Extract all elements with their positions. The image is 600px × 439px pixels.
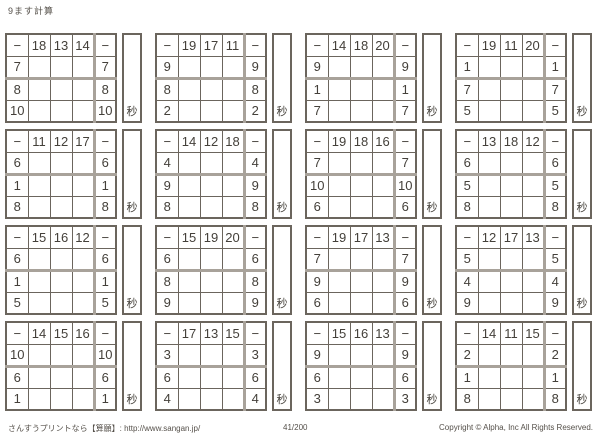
header-right-operator-cell: − xyxy=(544,130,566,152)
top-number-cell: 13 xyxy=(200,322,222,344)
right-number-cell: 5 xyxy=(544,248,566,270)
answer-cell xyxy=(350,196,372,218)
grid-row: 99 xyxy=(306,344,416,366)
right-number-cell: 8 xyxy=(244,78,266,100)
answer-cell xyxy=(372,248,394,270)
grid-row: 99 xyxy=(156,56,266,78)
left-number-cell: 4 xyxy=(156,152,178,174)
top-number-cell: 14 xyxy=(72,34,94,56)
answer-cell xyxy=(222,78,244,100)
answer-cell xyxy=(50,366,72,388)
seconds-label: 秒 xyxy=(127,391,138,407)
answer-cell xyxy=(50,270,72,292)
grid-row: 44 xyxy=(156,152,266,174)
grid-row: 11 xyxy=(456,56,566,78)
answer-cell xyxy=(522,56,544,78)
top-number-cell: 20 xyxy=(372,34,394,56)
answer-cell xyxy=(200,292,222,314)
grid-row: 11 xyxy=(6,270,116,292)
grid-header-row: −191120− xyxy=(456,34,566,56)
answer-cell xyxy=(350,248,372,270)
minus-operator-cell: − xyxy=(6,322,28,344)
right-number-cell: 1 xyxy=(94,388,116,410)
header-right-operator-cell: − xyxy=(94,226,116,248)
top-number-cell: 14 xyxy=(178,130,200,152)
answer-cell xyxy=(350,270,372,292)
minus-operator-cell: − xyxy=(6,130,28,152)
answer-cell xyxy=(350,174,372,196)
grid-row: 55 xyxy=(6,292,116,314)
answer-cell xyxy=(328,388,350,410)
right-number-cell: 9 xyxy=(394,56,416,78)
top-number-cell: 15 xyxy=(178,226,200,248)
right-number-cell: 6 xyxy=(544,152,566,174)
left-number-cell: 6 xyxy=(306,292,328,314)
answer-cell xyxy=(178,174,200,196)
answer-cell xyxy=(350,100,372,122)
answer-cell xyxy=(72,152,94,174)
header-right-operator-cell: − xyxy=(244,226,266,248)
grid-row: 88 xyxy=(456,388,566,410)
top-number-cell: 14 xyxy=(478,322,500,344)
right-number-cell: 10 xyxy=(94,344,116,366)
top-number-cell: 15 xyxy=(328,322,350,344)
answer-cell xyxy=(328,196,350,218)
top-number-cell: 12 xyxy=(50,130,72,152)
top-number-cell: 20 xyxy=(222,226,244,248)
seconds-box: 秒 xyxy=(422,225,442,315)
top-number-cell: 17 xyxy=(178,322,200,344)
top-number-cell: 13 xyxy=(522,226,544,248)
grid-row: 11 xyxy=(6,388,116,410)
right-number-cell: 6 xyxy=(244,366,266,388)
seconds-box: 秒 xyxy=(272,129,292,219)
left-number-cell: 8 xyxy=(156,78,178,100)
left-number-cell: 4 xyxy=(456,270,478,292)
answer-cell xyxy=(372,270,394,292)
worksheet-unit: −141820−991177秒 xyxy=(305,33,443,123)
header-right-operator-cell: − xyxy=(244,322,266,344)
left-number-cell: 8 xyxy=(456,388,478,410)
grid-row: 77 xyxy=(306,248,416,270)
top-number-cell: 18 xyxy=(28,34,50,56)
answer-cell xyxy=(178,78,200,100)
right-number-cell: 3 xyxy=(394,388,416,410)
answer-cell xyxy=(500,248,522,270)
answer-cell xyxy=(178,366,200,388)
calc-grid: −141516−10106611 xyxy=(5,321,117,411)
header-right-operator-cell: − xyxy=(544,322,566,344)
worksheet-unit: −141516−10106611秒 xyxy=(5,321,143,411)
answer-cell xyxy=(72,292,94,314)
grid-row: 66 xyxy=(6,366,116,388)
answer-cell xyxy=(50,388,72,410)
answer-cell xyxy=(50,292,72,314)
answer-cell xyxy=(372,366,394,388)
left-number-cell: 1 xyxy=(6,270,28,292)
grid-row: 88 xyxy=(6,78,116,100)
answer-cell xyxy=(178,152,200,174)
seconds-label: 秒 xyxy=(427,199,438,215)
answer-cell xyxy=(522,344,544,366)
right-number-cell: 4 xyxy=(244,388,266,410)
answer-cell xyxy=(522,248,544,270)
left-number-cell: 5 xyxy=(456,174,478,196)
left-number-cell: 6 xyxy=(306,196,328,218)
minus-operator-cell: − xyxy=(456,34,478,56)
right-number-cell: 4 xyxy=(244,152,266,174)
left-number-cell: 6 xyxy=(156,248,178,270)
answer-cell xyxy=(478,270,500,292)
top-number-cell: 16 xyxy=(72,322,94,344)
left-number-cell: 7 xyxy=(306,100,328,122)
seconds-label: 秒 xyxy=(277,295,288,311)
worksheet-unit: −191713−779966秒 xyxy=(305,225,443,315)
top-number-cell: 16 xyxy=(350,322,372,344)
calc-grid: −151920−668899 xyxy=(155,225,267,315)
right-number-cell: 6 xyxy=(394,366,416,388)
grid-row: 88 xyxy=(156,196,266,218)
answer-cell xyxy=(372,292,394,314)
answer-cell xyxy=(372,100,394,122)
grid-row: 11 xyxy=(306,78,416,100)
answer-cell xyxy=(28,366,50,388)
left-number-cell: 9 xyxy=(156,56,178,78)
header-right-operator-cell: − xyxy=(394,34,416,56)
grid-row: 66 xyxy=(306,366,416,388)
grid-row: 44 xyxy=(156,388,266,410)
answer-cell xyxy=(200,56,222,78)
answer-cell xyxy=(372,174,394,196)
grid-header-row: −151920− xyxy=(156,226,266,248)
answer-cell xyxy=(222,366,244,388)
answer-cell xyxy=(328,152,350,174)
top-number-cell: 11 xyxy=(500,322,522,344)
answer-cell xyxy=(200,174,222,196)
answer-cell xyxy=(350,292,372,314)
right-number-cell: 8 xyxy=(544,196,566,218)
left-number-cell: 6 xyxy=(156,366,178,388)
worksheet-unit: −171315−336644秒 xyxy=(155,321,293,411)
grid-row: 33 xyxy=(156,344,266,366)
calc-grid: −131812−665588 xyxy=(455,129,567,219)
answer-cell xyxy=(200,248,222,270)
answer-cell xyxy=(372,78,394,100)
answer-cell xyxy=(72,248,94,270)
answer-cell xyxy=(50,344,72,366)
right-number-cell: 5 xyxy=(544,100,566,122)
answer-cell xyxy=(28,196,50,218)
answer-cell xyxy=(328,248,350,270)
left-number-cell: 7 xyxy=(6,56,28,78)
left-number-cell: 9 xyxy=(456,292,478,314)
answer-cell xyxy=(372,196,394,218)
answer-cell xyxy=(178,248,200,270)
left-number-cell: 10 xyxy=(6,100,28,122)
grid-row: 33 xyxy=(306,388,416,410)
answer-cell xyxy=(328,292,350,314)
right-number-cell: 5 xyxy=(94,292,116,314)
grid-row: 66 xyxy=(306,196,416,218)
top-number-cell: 16 xyxy=(372,130,394,152)
seconds-label: 秒 xyxy=(277,391,288,407)
worksheet-unit: −121713−554499秒 xyxy=(455,225,593,315)
left-number-cell: 5 xyxy=(456,248,478,270)
left-number-cell: 8 xyxy=(156,196,178,218)
grid-row: 11 xyxy=(456,366,566,388)
grid-row: 88 xyxy=(156,270,266,292)
answer-cell xyxy=(350,366,372,388)
top-number-cell: 18 xyxy=(222,130,244,152)
grid-header-row: −141820− xyxy=(306,34,416,56)
seconds-label: 秒 xyxy=(427,295,438,311)
right-number-cell: 1 xyxy=(94,174,116,196)
calc-grid: −191120−117755 xyxy=(455,33,567,123)
header-right-operator-cell: − xyxy=(244,130,266,152)
top-number-cell: 14 xyxy=(28,322,50,344)
answer-cell xyxy=(50,174,72,196)
answer-cell xyxy=(200,366,222,388)
answer-cell xyxy=(72,388,94,410)
seconds-label: 秒 xyxy=(127,103,138,119)
grid-row: 66 xyxy=(306,292,416,314)
worksheet-unit: −151612−661155秒 xyxy=(5,225,143,315)
right-number-cell: 8 xyxy=(94,78,116,100)
grid-header-row: −111217− xyxy=(6,130,116,152)
grid-header-row: −151613− xyxy=(306,322,416,344)
answer-cell xyxy=(50,56,72,78)
answer-cell xyxy=(500,152,522,174)
right-number-cell: 3 xyxy=(244,344,266,366)
grid-header-row: −191816− xyxy=(306,130,416,152)
grid-header-row: −191713− xyxy=(306,226,416,248)
answer-cell xyxy=(72,78,94,100)
minus-operator-cell: − xyxy=(456,322,478,344)
left-number-cell: 8 xyxy=(6,196,28,218)
answer-cell xyxy=(28,270,50,292)
left-number-cell: 10 xyxy=(6,344,28,366)
left-number-cell: 7 xyxy=(306,152,328,174)
seconds-box: 秒 xyxy=(272,321,292,411)
calc-grid: −191816−77101066 xyxy=(305,129,417,219)
right-number-cell: 1 xyxy=(544,366,566,388)
answer-cell xyxy=(478,78,500,100)
answer-cell xyxy=(72,344,94,366)
calc-grid: −141218−449988 xyxy=(155,129,267,219)
seconds-box: 秒 xyxy=(122,225,142,315)
answer-cell xyxy=(522,292,544,314)
top-number-cell: 11 xyxy=(222,34,244,56)
answer-cell xyxy=(222,292,244,314)
left-number-cell: 9 xyxy=(306,270,328,292)
answer-cell xyxy=(522,174,544,196)
answer-cell xyxy=(328,270,350,292)
answer-cell xyxy=(28,152,50,174)
right-number-cell: 7 xyxy=(94,56,116,78)
top-number-cell: 17 xyxy=(72,130,94,152)
right-number-cell: 7 xyxy=(394,248,416,270)
right-number-cell: 10 xyxy=(94,100,116,122)
grid-header-row: −141218− xyxy=(156,130,266,152)
seconds-label: 秒 xyxy=(427,103,438,119)
answer-cell xyxy=(200,196,222,218)
answer-cell xyxy=(372,388,394,410)
minus-operator-cell: − xyxy=(6,34,28,56)
left-number-cell: 8 xyxy=(456,196,478,218)
grid-header-row: −121713− xyxy=(456,226,566,248)
grid-row: 88 xyxy=(156,78,266,100)
answer-cell xyxy=(222,56,244,78)
answer-cell xyxy=(372,56,394,78)
header-right-operator-cell: − xyxy=(94,322,116,344)
calc-grid: −111217−661188 xyxy=(5,129,117,219)
answer-cell xyxy=(328,344,350,366)
header-right-operator-cell: − xyxy=(94,130,116,152)
answer-cell xyxy=(500,388,522,410)
seconds-label: 秒 xyxy=(127,199,138,215)
top-number-cell: 15 xyxy=(28,226,50,248)
grid-row: 99 xyxy=(456,292,566,314)
answer-cell xyxy=(72,56,94,78)
answer-cell xyxy=(200,100,222,122)
answer-cell xyxy=(222,174,244,196)
grid-row: 22 xyxy=(456,344,566,366)
grid-row: 77 xyxy=(6,56,116,78)
answer-cell xyxy=(500,174,522,196)
answer-cell xyxy=(178,196,200,218)
top-number-cell: 13 xyxy=(372,322,394,344)
worksheet-unit: −191120−117755秒 xyxy=(455,33,593,123)
left-number-cell: 1 xyxy=(456,366,478,388)
right-number-cell: 7 xyxy=(394,100,416,122)
answer-cell xyxy=(478,174,500,196)
left-number-cell: 6 xyxy=(6,366,28,388)
grid-header-row: −141115− xyxy=(456,322,566,344)
calc-grid: −141820−991177 xyxy=(305,33,417,123)
answer-cell xyxy=(478,100,500,122)
grid-row: 66 xyxy=(156,248,266,270)
answer-cell xyxy=(500,292,522,314)
minus-operator-cell: − xyxy=(306,226,328,248)
minus-operator-cell: − xyxy=(156,34,178,56)
right-number-cell: 8 xyxy=(94,196,116,218)
seconds-box: 秒 xyxy=(272,225,292,315)
right-number-cell: 9 xyxy=(394,270,416,292)
left-number-cell: 1 xyxy=(6,174,28,196)
answer-cell xyxy=(478,388,500,410)
right-number-cell: 6 xyxy=(394,292,416,314)
grid-row: 99 xyxy=(156,174,266,196)
answer-cell xyxy=(28,174,50,196)
minus-operator-cell: − xyxy=(456,130,478,152)
answer-cell xyxy=(478,344,500,366)
seconds-box: 秒 xyxy=(122,129,142,219)
right-number-cell: 9 xyxy=(244,292,266,314)
answer-cell xyxy=(350,152,372,174)
answer-cell xyxy=(478,248,500,270)
worksheet-unit: −141115−221188秒 xyxy=(455,321,593,411)
grid-header-row: −181314− xyxy=(6,34,116,56)
left-number-cell: 7 xyxy=(456,78,478,100)
right-number-cell: 6 xyxy=(394,196,416,218)
answer-cell xyxy=(328,366,350,388)
answer-cell xyxy=(522,100,544,122)
grid-row: 1010 xyxy=(306,174,416,196)
answer-cell xyxy=(478,152,500,174)
grid-row: 99 xyxy=(156,292,266,314)
answer-cell xyxy=(28,78,50,100)
answer-cell xyxy=(328,174,350,196)
answer-cell xyxy=(372,152,394,174)
right-number-cell: 9 xyxy=(244,174,266,196)
calc-grid: −141115−221188 xyxy=(455,321,567,411)
left-number-cell: 1 xyxy=(6,388,28,410)
seconds-box: 秒 xyxy=(422,129,442,219)
header-right-operator-cell: − xyxy=(394,130,416,152)
grid-row: 77 xyxy=(306,100,416,122)
right-number-cell: 1 xyxy=(544,56,566,78)
seconds-label: 秒 xyxy=(127,295,138,311)
worksheet-unit: −151920−668899秒 xyxy=(155,225,293,315)
grid-row: 66 xyxy=(6,248,116,270)
left-number-cell: 9 xyxy=(156,174,178,196)
seconds-box: 秒 xyxy=(422,33,442,123)
top-number-cell: 19 xyxy=(328,226,350,248)
left-number-cell: 5 xyxy=(456,100,478,122)
grid-row: 55 xyxy=(456,174,566,196)
answer-cell xyxy=(72,174,94,196)
right-number-cell: 8 xyxy=(544,388,566,410)
left-number-cell: 6 xyxy=(306,366,328,388)
top-number-cell: 15 xyxy=(50,322,72,344)
header-right-operator-cell: − xyxy=(394,322,416,344)
right-number-cell: 2 xyxy=(544,344,566,366)
calc-grid: −171315−336644 xyxy=(155,321,267,411)
minus-operator-cell: − xyxy=(306,130,328,152)
answer-cell xyxy=(372,344,394,366)
top-number-cell: 19 xyxy=(478,34,500,56)
grid-header-row: −141516− xyxy=(6,322,116,344)
right-number-cell: 6 xyxy=(244,248,266,270)
seconds-label: 秒 xyxy=(427,391,438,407)
minus-operator-cell: − xyxy=(456,226,478,248)
seconds-label: 秒 xyxy=(577,103,588,119)
answer-cell xyxy=(328,78,350,100)
grid-row: 55 xyxy=(456,100,566,122)
answer-cell xyxy=(350,388,372,410)
top-number-cell: 16 xyxy=(50,226,72,248)
answer-cell xyxy=(72,366,94,388)
answer-cell xyxy=(328,100,350,122)
right-number-cell: 6 xyxy=(94,248,116,270)
grid-header-row: −131812− xyxy=(456,130,566,152)
left-number-cell: 6 xyxy=(6,248,28,270)
answer-cell xyxy=(500,344,522,366)
right-number-cell: 1 xyxy=(394,78,416,100)
calc-grid: −151613−996633 xyxy=(305,321,417,411)
answer-cell xyxy=(28,344,50,366)
right-number-cell: 6 xyxy=(94,366,116,388)
answer-cell xyxy=(522,270,544,292)
answer-cell xyxy=(50,152,72,174)
seconds-label: 秒 xyxy=(577,391,588,407)
worksheet-unit: −191816−77101066秒 xyxy=(305,129,443,219)
seconds-box: 秒 xyxy=(572,225,592,315)
right-number-cell: 6 xyxy=(94,152,116,174)
grid-row: 66 xyxy=(6,152,116,174)
top-number-cell: 19 xyxy=(200,226,222,248)
answer-cell xyxy=(178,56,200,78)
